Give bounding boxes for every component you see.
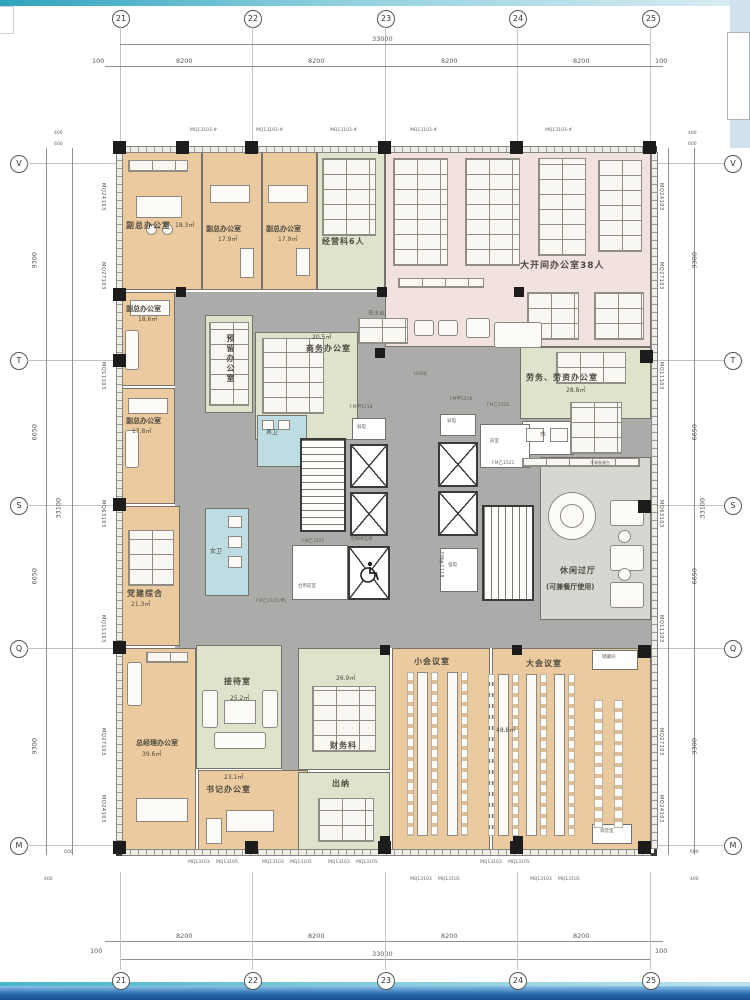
- desk: [210, 185, 250, 203]
- window-tag: MQ24103: [100, 795, 105, 823]
- desk: [136, 196, 182, 218]
- dim-end: 100: [90, 948, 102, 955]
- page-bottom-accent-bar: [0, 986, 750, 1000]
- dim-seg: 6650: [692, 424, 699, 441]
- window-tag: MQ13103-#: [190, 129, 217, 134]
- window-tag: MQ27103: [100, 262, 105, 290]
- grid-line: [252, 872, 253, 970]
- dim-seg: 9300: [32, 738, 39, 755]
- sofa: [494, 322, 542, 348]
- room-label: 劳务、劳资办公室: [526, 374, 598, 382]
- column: [176, 141, 189, 154]
- column: [176, 287, 186, 297]
- grid-line: [650, 872, 651, 970]
- dim-offset: 600: [688, 143, 697, 148]
- grid-bubble-25: 25: [642, 10, 660, 28]
- column: [113, 498, 126, 511]
- door-tag: FM甲1218: [350, 406, 372, 411]
- window-tag: MQ13103: [410, 878, 432, 883]
- meeting-table: [554, 674, 565, 836]
- room-area: 25.2㎡: [230, 696, 249, 702]
- room-label: 调音室: [600, 830, 614, 835]
- window-tag: MQ11103: [658, 362, 663, 390]
- dim-seg: 8200: [308, 933, 325, 940]
- window-tag: MQ27103: [100, 728, 105, 756]
- column: [638, 841, 651, 854]
- room-area: 39.6㎡: [142, 752, 161, 758]
- page-corner-notch: [0, 6, 14, 34]
- elevator-shaft: [438, 491, 478, 536]
- window-tag: MQ11103: [658, 615, 663, 643]
- cabinet: [206, 818, 222, 844]
- window-tag: MQ63103: [100, 500, 105, 528]
- dim-seg: 8200: [441, 933, 458, 940]
- window-tag: MQ63103: [658, 500, 663, 528]
- column: [638, 645, 651, 658]
- room-label: 副总办公室: [126, 306, 161, 313]
- column: [640, 350, 653, 363]
- column: [113, 141, 126, 154]
- cabinet: [128, 160, 188, 172]
- core-label: 水: [540, 432, 546, 438]
- column: [380, 836, 390, 846]
- cabinet: [146, 652, 188, 663]
- desk-cluster: [393, 158, 448, 266]
- column: [245, 841, 258, 854]
- dim-end: 100: [655, 948, 667, 955]
- room-area: 18.3㎡: [175, 223, 194, 229]
- window-tag: MQ13103-#: [545, 129, 572, 134]
- dim-offset: 400: [54, 132, 63, 137]
- column: [512, 645, 522, 655]
- elevator-shaft: [350, 492, 388, 536]
- door-tag: FM甲1218: [450, 398, 472, 403]
- window-tag: MQ13103: [328, 861, 350, 866]
- dim-end: 100: [655, 58, 667, 65]
- sofa: [125, 330, 139, 370]
- desk: [128, 398, 168, 414]
- chair-row: [407, 672, 414, 836]
- desk-cluster: [465, 158, 520, 266]
- fixture: [550, 428, 568, 442]
- grid-bubble-23: 23: [377, 10, 395, 28]
- dim-line-total-top: [120, 44, 650, 45]
- desk-cluster: [538, 158, 586, 256]
- sofa: [125, 430, 139, 468]
- sofa: [262, 690, 278, 728]
- room-label-note: (可兼餐厅使用): [546, 584, 594, 591]
- core-label: 弱电: [447, 420, 456, 425]
- window-tag: MQ11103: [100, 362, 105, 390]
- room-area: 18.6㎡: [138, 317, 157, 323]
- dim-seg: 9300: [692, 252, 699, 269]
- door-tag: FM乙1521(甲): [256, 600, 286, 605]
- dim-seg: 8200: [176, 933, 193, 940]
- dim-seg: 6650: [32, 568, 39, 585]
- dim-offset: 600: [54, 143, 63, 148]
- coffee-table: [224, 700, 256, 724]
- counter: [398, 278, 484, 288]
- annotation: 1000高: [413, 372, 427, 376]
- column: [113, 354, 126, 367]
- tea-counter: [358, 318, 408, 344]
- dim-seg: 8200: [573, 933, 590, 940]
- column: [378, 141, 391, 154]
- floor-plan-page: 21 22 23 24 25 33000 8200 8200 8200 8200…: [0, 0, 750, 1000]
- window-tag: MQ13103-#: [410, 129, 437, 134]
- round-table-center: [560, 504, 584, 528]
- page-top-accent-bar: [0, 0, 750, 6]
- dim-total-right: 33100: [700, 498, 707, 519]
- grid-bubble-25: 25: [642, 972, 660, 990]
- grid-line: [656, 845, 724, 846]
- room-label: 大开间办公室38人: [520, 262, 605, 271]
- room-area: 23.1㎡: [224, 775, 243, 781]
- grid-bubble-21: 21: [112, 10, 130, 28]
- window-tag: MQ13105: [508, 861, 530, 866]
- dim-seg: 8200: [176, 58, 193, 65]
- dim-seg: 8200: [441, 58, 458, 65]
- meeting-table: [526, 674, 537, 836]
- window-tag: MQ13103: [262, 861, 284, 866]
- room-label: 出纳: [332, 780, 350, 788]
- side-table: [618, 530, 631, 543]
- desk: [136, 798, 188, 822]
- desk-cluster: [594, 292, 644, 340]
- room-label: 党建综合: [127, 590, 163, 598]
- room-label: 经营科6人: [322, 238, 365, 246]
- grid-bubble-T: T: [724, 352, 742, 370]
- room-label: 大会议室: [526, 660, 562, 668]
- grid-line: [120, 872, 121, 970]
- chair-row: [594, 700, 603, 828]
- column: [513, 836, 523, 846]
- dim-offset: 400: [690, 878, 699, 883]
- room-elv-right: [440, 414, 476, 436]
- dim-total-top: 33000: [372, 36, 393, 43]
- chair-row: [540, 674, 547, 836]
- meeting-table: [498, 674, 509, 836]
- window-tag: MQ24103: [100, 183, 105, 211]
- column: [638, 500, 651, 513]
- column: [643, 141, 656, 154]
- chair-row: [488, 674, 495, 836]
- column: [380, 645, 390, 655]
- room-label: 男卫: [266, 430, 278, 436]
- column: [113, 288, 126, 301]
- dim-offset: 400: [688, 132, 697, 137]
- column: [375, 348, 385, 358]
- dim-seg: 6650: [692, 568, 699, 585]
- dim-total-bottom: 33000: [372, 951, 393, 958]
- sofa: [610, 545, 644, 571]
- grid-bubble-S: S: [724, 497, 742, 515]
- dim-offset: 600: [690, 851, 699, 856]
- column: [245, 141, 258, 154]
- room-label: 接待室: [224, 678, 251, 686]
- room-label: 副总办公室: [266, 226, 301, 233]
- door-tag: FM乙1521: [302, 540, 324, 545]
- dim-total-left: 33100: [56, 498, 63, 519]
- room-label: 女卫: [210, 549, 222, 555]
- window-tag: MQ13103: [530, 878, 552, 883]
- dim-seg: 8200: [573, 58, 590, 65]
- door-tag: FM乙1521: [492, 462, 514, 467]
- column: [113, 841, 126, 854]
- window-tag: MQ13103-#: [256, 129, 283, 134]
- room-label: 副总办公室: [126, 418, 161, 425]
- sofa: [438, 320, 458, 336]
- room-power: [440, 548, 478, 592]
- meeting-table: [417, 672, 428, 836]
- chair-row: [614, 700, 623, 828]
- corridor: [540, 620, 652, 648]
- window-tag: MQ11103: [100, 615, 105, 643]
- grid-bubble-22: 22: [244, 10, 262, 28]
- dim-line-total-left: [72, 148, 73, 855]
- room-shared-lobby: [292, 545, 348, 600]
- dim-line-seg-bottom: [105, 941, 663, 942]
- window-tag: MQ13103-#: [330, 129, 357, 134]
- room-label: 副总办公室: [206, 226, 241, 233]
- room-label: 商务办公室: [306, 345, 351, 353]
- core-label: 前室: [490, 440, 499, 445]
- window-tag: MQ27103: [658, 262, 663, 290]
- desk-cluster: [318, 798, 374, 842]
- cabinet: [240, 248, 254, 278]
- sofa: [610, 582, 644, 608]
- sofa: [214, 732, 266, 749]
- fixture: [278, 420, 290, 430]
- chair-row: [461, 672, 468, 836]
- grid-line: [656, 505, 724, 506]
- desk-cluster: [322, 158, 376, 236]
- room-label: 小会议室: [414, 658, 450, 666]
- elevator-shaft: [438, 442, 478, 487]
- desk: [268, 185, 308, 203]
- desk-cluster: [570, 402, 622, 454]
- core-label: 弱电: [357, 426, 366, 431]
- grid-bubble-M: M: [10, 837, 28, 855]
- stair-east: [482, 505, 534, 601]
- meeting-table: [128, 530, 174, 586]
- desk-cluster: [598, 160, 642, 252]
- room-label: 休闲过厅: [560, 567, 596, 575]
- column: [514, 287, 524, 297]
- window-band: [651, 152, 658, 849]
- chair-row: [431, 672, 438, 836]
- grid-bubble-21: 21: [112, 972, 130, 990]
- page-right-corner-box: [727, 32, 750, 120]
- dim-seg: 8200: [308, 58, 325, 65]
- room-label: 总经理办公室: [136, 740, 178, 747]
- dim-seg: 9300: [32, 252, 39, 269]
- core-label: 强电: [448, 564, 457, 569]
- grid-line: [656, 163, 724, 164]
- window-tag: MQ24103: [658, 795, 663, 823]
- grid-line: [656, 648, 724, 649]
- grid-bubble-24: 24: [509, 972, 527, 990]
- door-tag: FM乙1521: [487, 404, 509, 409]
- grid-bubble-S: S: [10, 497, 28, 515]
- core-label: 冷餐备餐台: [590, 461, 610, 465]
- grid-line: [656, 360, 724, 361]
- wheelchair-icon: [358, 560, 380, 586]
- dim-offset: 400: [44, 878, 53, 883]
- column: [377, 287, 387, 297]
- window-tag: MQ13105: [438, 878, 460, 883]
- side-table: [618, 568, 631, 581]
- window-tag: MQ13103: [480, 861, 502, 866]
- window-tag: MQ13103: [188, 861, 210, 866]
- window-tag: MQ27103: [658, 728, 663, 756]
- grid-bubble-V: V: [724, 155, 742, 173]
- column: [113, 641, 126, 654]
- fixture: [228, 556, 242, 568]
- window-tag: MQ24103: [658, 183, 663, 211]
- dim-line-total-right: [668, 148, 669, 855]
- room-area: 26.9㎡: [336, 676, 355, 682]
- dim-offset: 600: [64, 851, 73, 856]
- core-label: 合用前室: [298, 585, 316, 590]
- room-area: 17.9㎡: [218, 237, 237, 243]
- grid-bubble-Q: Q: [10, 640, 28, 658]
- dim-seg: 6650: [32, 424, 39, 441]
- window-tag: MQ13105: [216, 861, 238, 866]
- room-label: 书记办公室: [206, 786, 251, 794]
- buffet-counter: [522, 458, 640, 467]
- grid-line: [517, 872, 518, 970]
- room-area: 48.8㎡: [496, 728, 515, 734]
- room-label: 储藏间: [602, 656, 616, 661]
- core-label: 无障碍电梯: [350, 538, 373, 543]
- grid-line: [385, 872, 386, 970]
- grid-bubble-22: 22: [244, 972, 262, 990]
- room-label: 副总办公室: [126, 222, 171, 230]
- dim-seg: 9300: [692, 738, 699, 755]
- fixture: [228, 536, 242, 548]
- grid-bubble-24: 24: [509, 10, 527, 28]
- room-area: 28.8㎡: [566, 388, 585, 394]
- room-area: 17.9㎡: [278, 237, 297, 243]
- dim-line-seg-top: [105, 66, 663, 67]
- sofa: [127, 662, 142, 706]
- window-tag: MQ13105: [558, 878, 580, 883]
- grid-bubble-Q: Q: [724, 640, 742, 658]
- grid-bubble-M: M: [724, 837, 742, 855]
- core-label: 茶水台: [368, 312, 385, 318]
- grid-line: [650, 26, 651, 146]
- sofa: [202, 690, 218, 728]
- window-tag: MQ13105: [356, 861, 378, 866]
- dim-end: 100: [92, 58, 104, 65]
- room-area: 21.3㎡: [131, 602, 150, 608]
- fixture: [228, 516, 242, 528]
- grid-bubble-T: T: [10, 352, 28, 370]
- room-area: 20.5㎡: [312, 335, 331, 341]
- chair-row: [568, 674, 575, 836]
- armchair: [466, 318, 490, 338]
- cabinet: [296, 248, 310, 276]
- room-area: 17.8㎡: [132, 429, 151, 435]
- column: [510, 141, 523, 154]
- grid-bubble-V: V: [10, 155, 28, 173]
- room-label: 财务科: [330, 742, 357, 750]
- elevator-shaft: [350, 444, 388, 488]
- grid-bubble-23: 23: [377, 972, 395, 990]
- room-label: 预留办公室: [226, 334, 234, 384]
- chair-row: [512, 674, 519, 836]
- door-tag: FM甲1118: [438, 552, 443, 578]
- stair-west: [300, 438, 346, 532]
- meeting-table: [447, 672, 458, 836]
- sofa: [414, 320, 434, 336]
- desk: [226, 810, 274, 832]
- window-tag: MQ13105: [290, 861, 312, 866]
